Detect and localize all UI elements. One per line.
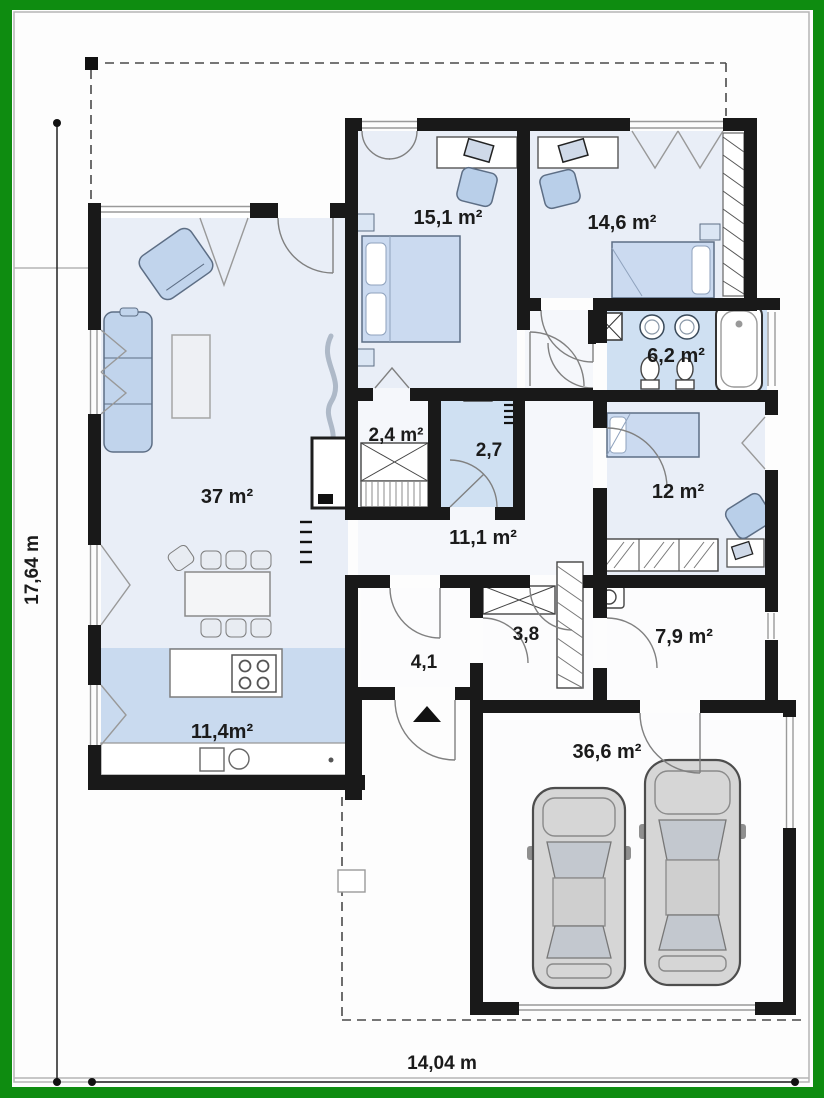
bedroom2-wardrobe bbox=[723, 133, 744, 296]
dimension-label-width: 14,04 m bbox=[407, 1053, 477, 1074]
desk-icon bbox=[538, 137, 618, 168]
room-area-label: 37 m² bbox=[201, 486, 254, 508]
room-area-label: 14,6 m² bbox=[588, 212, 657, 234]
roof-corner-marker bbox=[85, 57, 98, 70]
room-area-label: 11,1 m² bbox=[449, 527, 517, 549]
hall-closet bbox=[557, 562, 583, 688]
room-area-label: 3,8 bbox=[513, 624, 539, 645]
room-area-label: 2,4 m² bbox=[369, 425, 424, 446]
bedroom3-wardrobe bbox=[600, 539, 718, 571]
dimension-label-height: 17,64 m bbox=[22, 535, 43, 605]
room-area-label: 7,9 m² bbox=[655, 626, 713, 648]
bathtub-icon bbox=[716, 306, 762, 392]
car-icon bbox=[527, 788, 631, 988]
floor-plan-image: 37 m² 11,4m² 15,1 m² 14,6 m² 6,2 m² 2,4 … bbox=[0, 0, 824, 1098]
room-area-label: 4,1 bbox=[411, 652, 438, 673]
room-area-label: 12 m² bbox=[652, 481, 705, 503]
room-area-label: 15,1 m² bbox=[414, 207, 483, 229]
kitchen-island-icon bbox=[170, 649, 282, 697]
room-area-label: 6,2 m² bbox=[647, 345, 705, 367]
desk-icon bbox=[437, 137, 517, 168]
room-area-label: 2,7 bbox=[476, 440, 502, 461]
room-area-label: 11,4m² bbox=[191, 721, 254, 743]
porch-step bbox=[338, 870, 365, 892]
closet-xbox bbox=[483, 586, 555, 614]
car-icon bbox=[639, 760, 746, 985]
kitchen-counter-icon bbox=[101, 743, 348, 775]
coffee-table-icon bbox=[172, 335, 210, 418]
wardrobe-xbox bbox=[361, 443, 428, 507]
desk-icon bbox=[727, 539, 764, 567]
room-area-label: 36,6 m² bbox=[573, 741, 642, 763]
